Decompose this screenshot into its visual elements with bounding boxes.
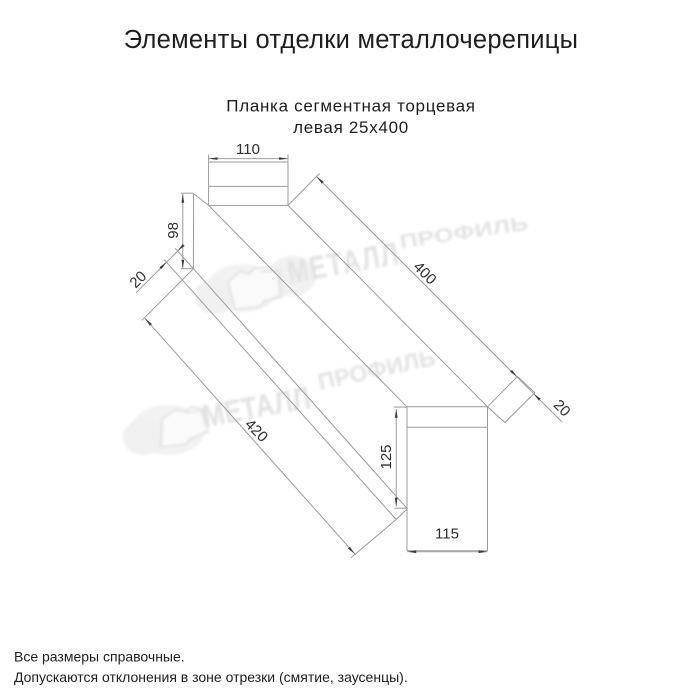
svg-text:Планка сегментная торцевая: Планка сегментная торцевая [226, 97, 475, 116]
svg-text:Элементы отделки металлочерепи: Элементы отделки металлочерепицы [124, 26, 578, 54]
svg-text:110: 110 [236, 141, 260, 158]
svg-text:левая 25х400: левая 25х400 [293, 118, 409, 137]
svg-text:Все размеры справочные.: Все размеры справочные. [14, 649, 185, 665]
svg-text:Допускаются отклонения в зоне: Допускаются отклонения в зоне отрезки (с… [14, 669, 408, 685]
svg-text:125: 125 [378, 444, 395, 469]
svg-text:115: 115 [435, 526, 459, 543]
svg-text:98: 98 [165, 222, 182, 239]
